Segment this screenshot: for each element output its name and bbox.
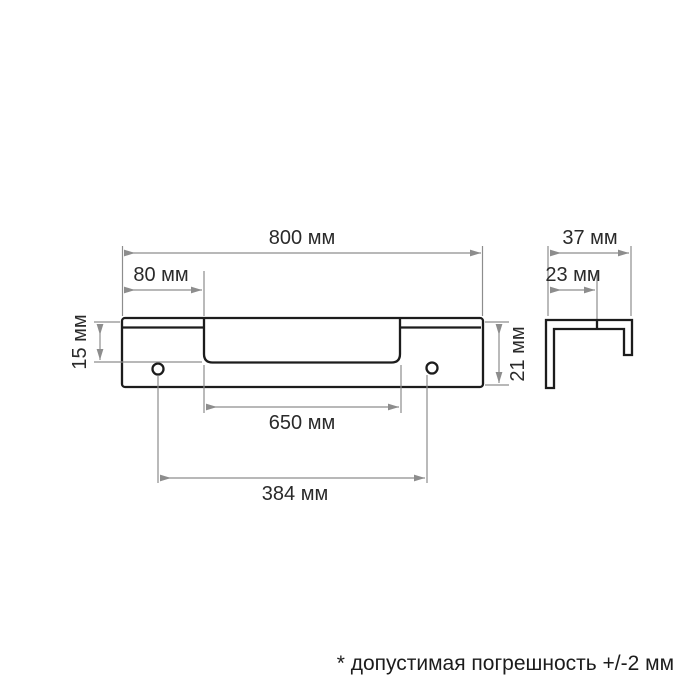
side-view: 37 мм 23 мм xyxy=(545,227,632,388)
dim-label-recess-width: 650 мм xyxy=(269,412,335,434)
dim-label-inner-depth: 23 мм xyxy=(545,264,600,286)
dim-label-left-offset: 80 мм xyxy=(133,264,188,286)
drawing-canvas: 800 мм 80 мм 15 мм 2 xyxy=(0,0,700,700)
dim-left-offset: 80 мм xyxy=(124,264,204,316)
dim-label-total-width: 800 мм xyxy=(269,227,335,249)
front-view: 800 мм 80 мм 15 мм 2 xyxy=(69,227,529,505)
handle-body xyxy=(122,318,483,387)
dim-label-hole-spacing: 384 мм xyxy=(262,483,328,505)
dim-label-total-depth: 37 мм xyxy=(562,227,617,249)
dim-label-profile-height: 21 мм xyxy=(507,326,529,381)
mount-hole-right xyxy=(427,363,438,374)
dim-inner-depth: 23 мм xyxy=(545,264,600,325)
dim-profile-height: 21 мм xyxy=(485,322,529,385)
dim-hole-spacing: 384 мм xyxy=(158,375,427,505)
tolerance-note: * допустимая погрешность +/-2 мм xyxy=(337,652,674,675)
technical-drawing: 800 мм 80 мм 15 мм 2 xyxy=(0,0,700,700)
mount-hole-left xyxy=(153,364,164,375)
profile-outline xyxy=(546,320,632,388)
profile-section xyxy=(546,319,632,388)
dim-label-lip-height: 15 мм xyxy=(69,314,91,369)
